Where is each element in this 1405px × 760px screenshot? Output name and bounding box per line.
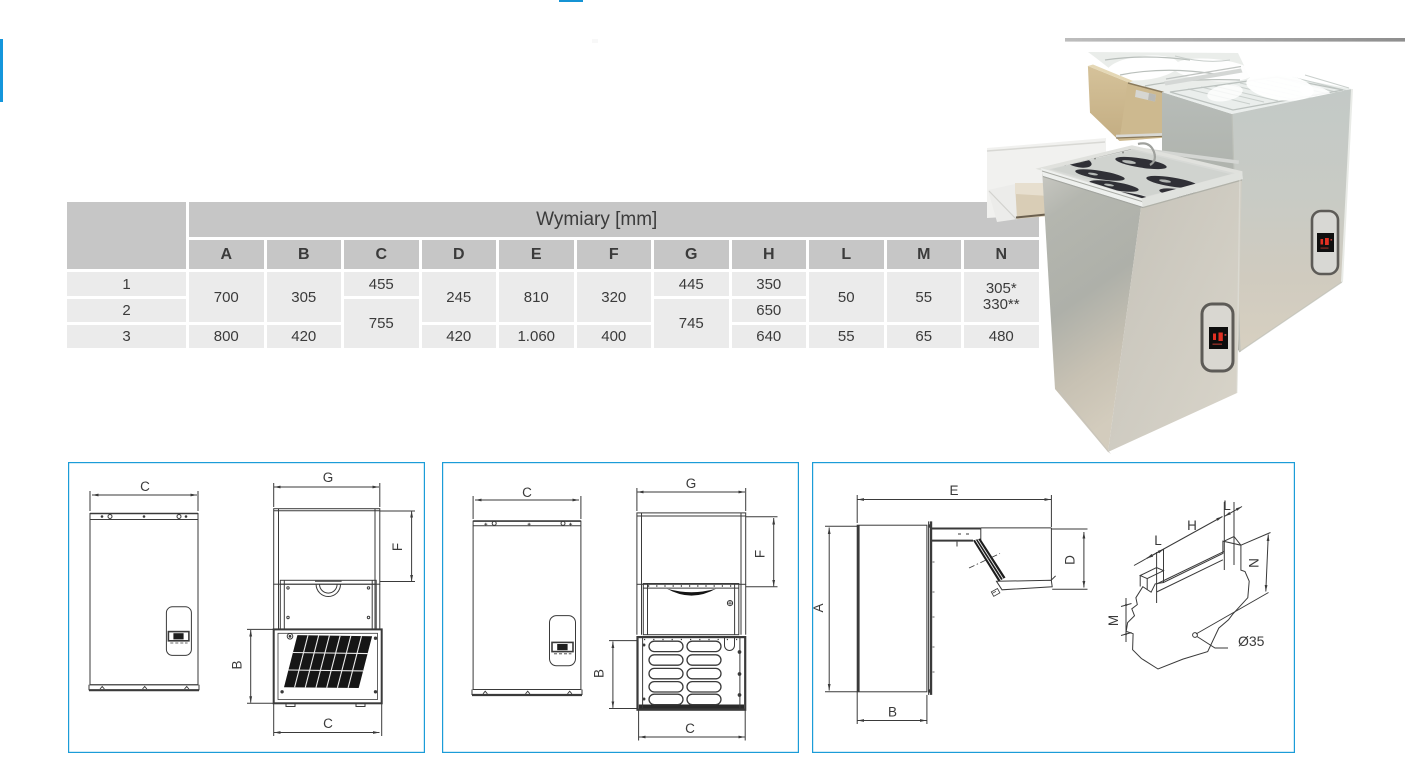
svg-text:N: N (1247, 558, 1262, 568)
svg-text:C: C (140, 479, 150, 494)
svg-text:C: C (323, 716, 333, 731)
svg-text:B: B (592, 669, 607, 678)
svg-text:L: L (1223, 498, 1231, 513)
svg-text:A: A (812, 603, 826, 612)
svg-text:D: D (1063, 555, 1078, 565)
svg-text:M: M (1106, 615, 1121, 626)
svg-text:C: C (685, 721, 695, 736)
svg-text:C: C (522, 485, 532, 500)
svg-text:E: E (949, 483, 958, 498)
svg-text:F: F (390, 543, 405, 551)
svg-text:H: H (1187, 518, 1197, 533)
svg-text:B: B (230, 660, 245, 669)
svg-text:Ø35: Ø35 (1238, 633, 1265, 649)
svg-text:G: G (686, 476, 697, 491)
svg-text:G: G (323, 470, 334, 485)
svg-text:F: F (753, 550, 768, 558)
svg-text:B: B (888, 705, 897, 720)
svg-text:L: L (1154, 533, 1162, 548)
